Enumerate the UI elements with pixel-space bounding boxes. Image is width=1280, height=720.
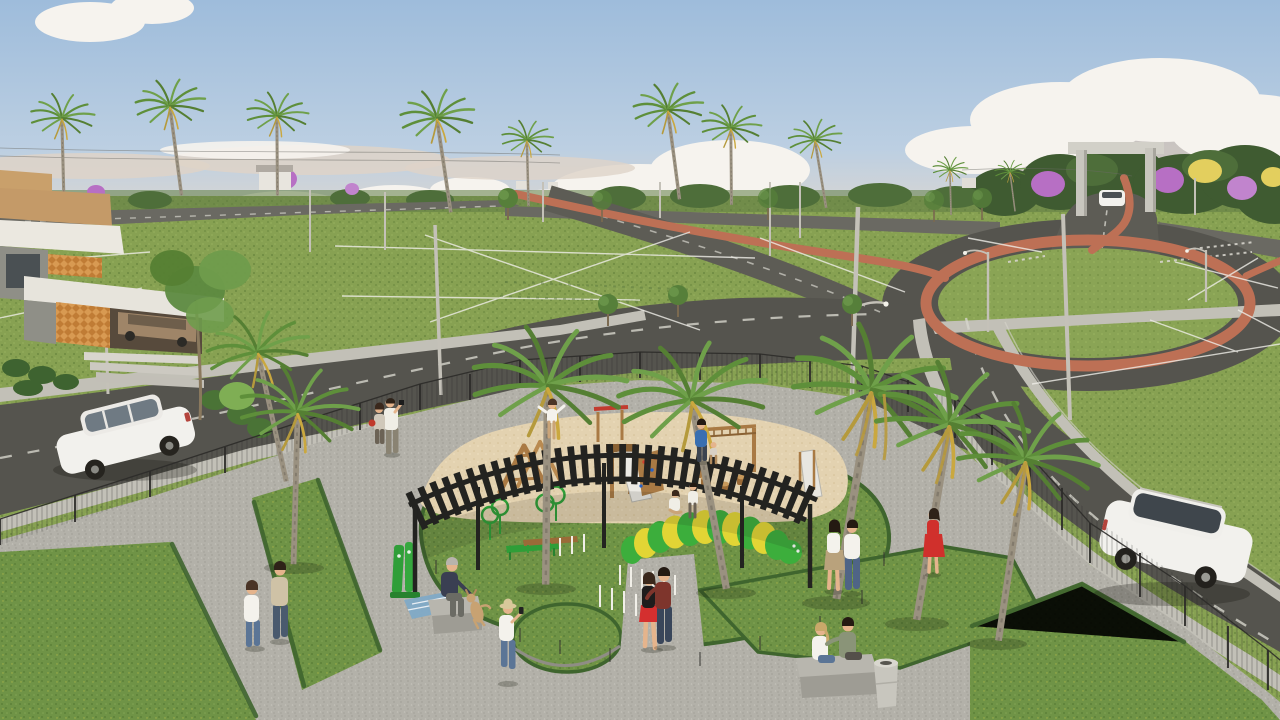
house-cobogo-upper <box>48 254 102 278</box>
red-bag <box>369 420 376 427</box>
litter-bin <box>874 659 898 709</box>
lamp-head <box>883 301 888 306</box>
roundabout-island <box>938 248 1238 358</box>
grass-mound <box>513 604 621 672</box>
distant-white-car <box>1099 190 1125 206</box>
bench-right <box>796 654 878 698</box>
scene-render <box>0 0 1280 720</box>
house-cobogo-lower <box>56 302 110 348</box>
render-viewport <box>0 0 1280 720</box>
